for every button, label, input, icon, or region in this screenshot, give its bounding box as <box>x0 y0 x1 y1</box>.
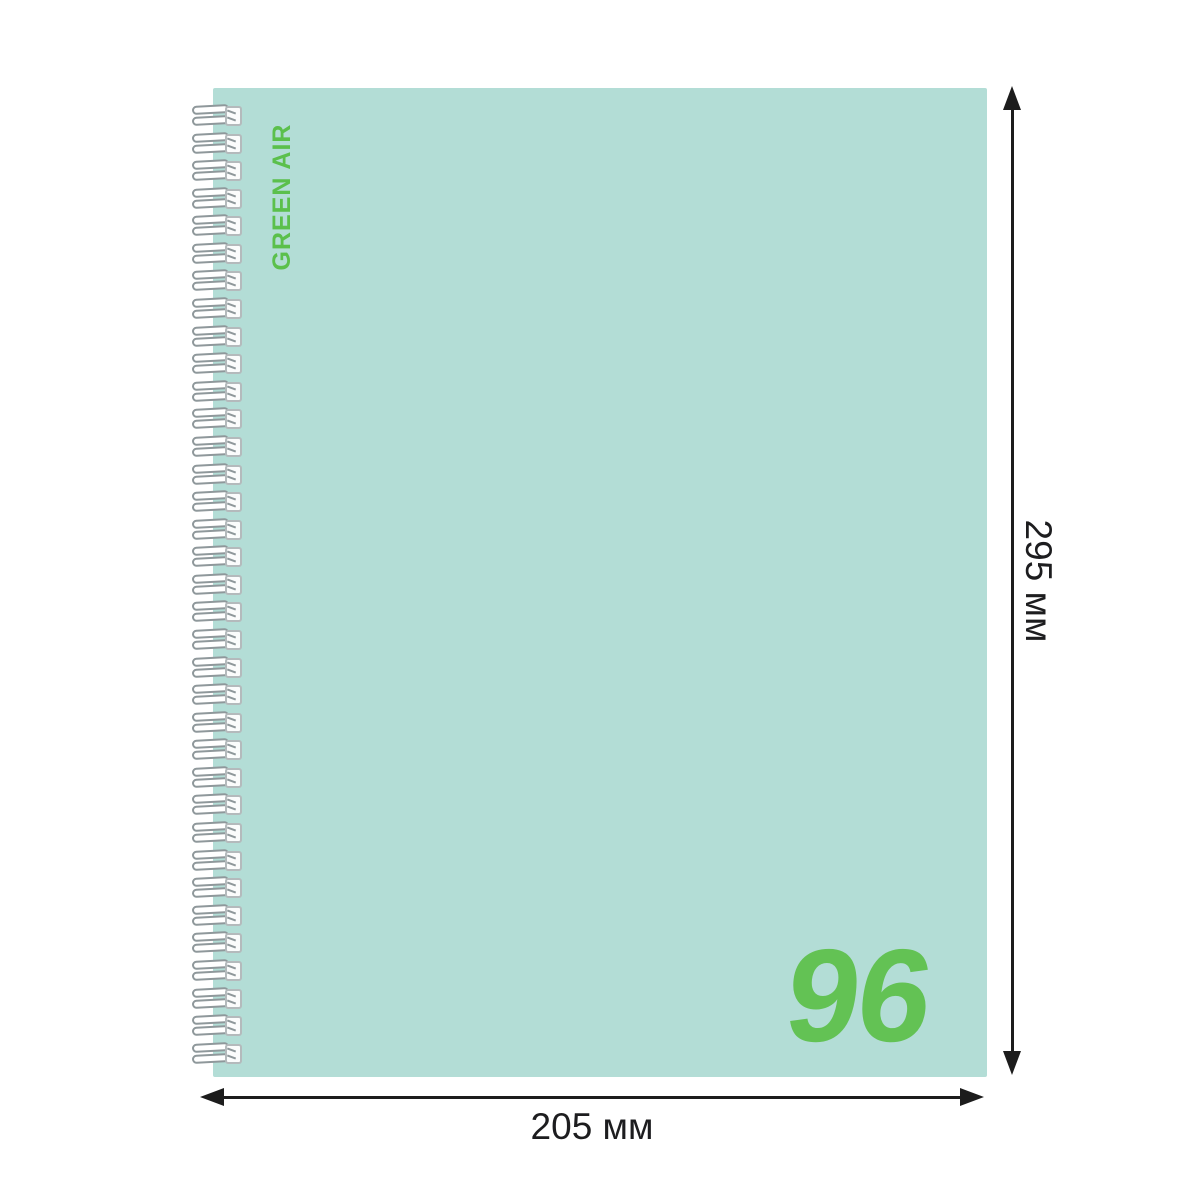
height-dimension-label: 295 мм <box>1016 431 1060 731</box>
wire-coil <box>192 574 242 596</box>
wire-coil <box>192 353 242 375</box>
wire-ring <box>192 766 229 777</box>
wire-ring <box>192 860 229 871</box>
wire-ring <box>192 501 229 512</box>
wire-coil <box>192 1015 242 1037</box>
punch-hole <box>225 134 242 154</box>
wire-coil <box>192 822 242 844</box>
punch-hole <box>225 547 242 567</box>
wire-ring <box>192 115 229 126</box>
wire-coil <box>192 270 242 292</box>
wire-coil <box>192 601 242 623</box>
wire-ring <box>192 242 229 253</box>
brand-text: GREEN AIR <box>267 67 297 327</box>
wire-coil <box>192 905 242 927</box>
punch-hole <box>225 271 242 291</box>
wire-ring <box>192 694 229 705</box>
punch-hole <box>225 933 242 953</box>
wire-coil <box>192 298 242 320</box>
wire-ring <box>192 474 229 485</box>
wire-ring <box>192 1014 229 1025</box>
wire-ring <box>192 435 229 446</box>
wire-ring <box>192 639 229 650</box>
wire-coil <box>192 519 242 541</box>
spiral-binding <box>192 105 242 1065</box>
punch-hole <box>225 216 242 236</box>
wire-ring <box>192 821 229 832</box>
wire-ring <box>192 253 229 264</box>
punch-hole <box>225 437 242 457</box>
wire-coil <box>192 408 242 430</box>
wire-coil <box>192 657 242 679</box>
wire-ring <box>192 904 229 915</box>
wire-coil <box>192 326 242 348</box>
wire-ring <box>192 738 229 749</box>
arrow-down-icon <box>1003 1051 1021 1075</box>
wire-ring <box>192 683 229 694</box>
wire-ring <box>192 611 229 622</box>
height-dimension-line <box>1011 98 1014 1062</box>
wire-coil <box>192 188 242 210</box>
wire-ring <box>192 529 229 540</box>
arrow-right-icon <box>960 1088 984 1106</box>
wire-coil <box>192 105 242 127</box>
wire-ring <box>192 931 229 942</box>
wire-coil <box>192 988 242 1010</box>
wire-ring <box>192 407 229 418</box>
punch-hole <box>225 465 242 485</box>
wire-coil <box>192 684 242 706</box>
wire-ring <box>192 143 229 154</box>
wire-ring <box>192 297 229 308</box>
punch-hole <box>225 989 242 1009</box>
punch-hole <box>225 1044 242 1064</box>
wire-coil <box>192 381 242 403</box>
wire-ring <box>192 159 229 170</box>
wire-ring <box>192 584 229 595</box>
punch-hole <box>225 244 242 264</box>
wire-ring <box>192 1053 229 1064</box>
wire-coil <box>192 629 242 651</box>
wire-ring <box>192 490 229 501</box>
wire-ring <box>192 214 229 225</box>
wire-ring <box>192 352 229 363</box>
punch-hole <box>225 906 242 926</box>
punch-hole <box>225 106 242 126</box>
wire-ring <box>192 628 229 639</box>
product-image: GREEN AIR 96 295 мм 205 мм <box>0 0 1200 1200</box>
wire-coil <box>192 546 242 568</box>
punch-hole <box>225 327 242 347</box>
wire-ring <box>192 391 229 402</box>
wire-ring <box>192 722 229 733</box>
wire-coil <box>192 960 242 982</box>
wire-ring <box>192 170 229 181</box>
wire-coil <box>192 850 242 872</box>
punch-hole <box>225 685 242 705</box>
wire-ring <box>192 600 229 611</box>
wire-ring <box>192 656 229 667</box>
wire-ring <box>192 987 229 998</box>
punch-hole <box>225 161 242 181</box>
wire-ring <box>192 308 229 319</box>
wire-ring <box>192 187 229 198</box>
wire-ring <box>192 849 229 860</box>
wire-ring <box>192 711 229 722</box>
wire-ring <box>192 667 229 678</box>
wire-ring <box>192 1025 229 1036</box>
punch-hole <box>225 630 242 650</box>
punch-hole <box>225 658 242 678</box>
wire-coil <box>192 436 242 458</box>
wire-ring <box>192 281 229 292</box>
wire-ring <box>192 132 229 143</box>
punch-hole <box>225 520 242 540</box>
punch-hole <box>225 878 242 898</box>
wire-ring <box>192 832 229 843</box>
punch-hole <box>225 740 242 760</box>
wire-ring <box>192 573 229 584</box>
wire-coil <box>192 794 242 816</box>
wire-ring <box>192 998 229 1009</box>
wire-coil <box>192 767 242 789</box>
width-dimension-label: 205 мм <box>442 1105 742 1149</box>
punch-hole <box>225 823 242 843</box>
wire-ring <box>192 942 229 953</box>
wire-ring <box>192 270 229 281</box>
wire-ring <box>192 793 229 804</box>
wire-coil <box>192 243 242 265</box>
punch-hole <box>225 1016 242 1036</box>
wire-ring <box>192 363 229 374</box>
wire-ring <box>192 380 229 391</box>
wire-ring <box>192 325 229 336</box>
width-dimension-line <box>214 1096 970 1099</box>
wire-ring <box>192 970 229 981</box>
wire-coil <box>192 133 242 155</box>
punch-hole <box>225 492 242 512</box>
arrow-left-icon <box>200 1088 224 1106</box>
wire-ring <box>192 876 229 887</box>
wire-coil <box>192 877 242 899</box>
wire-ring <box>192 804 229 815</box>
punch-hole <box>225 795 242 815</box>
punch-hole <box>225 575 242 595</box>
wire-ring <box>192 887 229 898</box>
punch-hole <box>225 382 242 402</box>
notebook-cover: GREEN AIR 96 <box>213 88 987 1077</box>
wire-ring <box>192 749 229 760</box>
wire-coil <box>192 215 242 237</box>
wire-ring <box>192 518 229 529</box>
wire-coil <box>192 932 242 954</box>
wire-ring <box>192 418 229 429</box>
punch-hole <box>225 409 242 429</box>
wire-ring <box>192 198 229 209</box>
punch-hole <box>225 768 242 788</box>
wire-ring <box>192 336 229 347</box>
wire-ring <box>192 446 229 457</box>
punch-hole <box>225 189 242 209</box>
wire-ring <box>192 777 229 788</box>
wire-ring <box>192 104 229 115</box>
wire-ring <box>192 225 229 236</box>
wire-coil <box>192 712 242 734</box>
wire-ring <box>192 915 229 926</box>
wire-coil <box>192 739 242 761</box>
wire-ring <box>192 545 229 556</box>
sheet-count: 96 <box>779 930 938 1062</box>
wire-ring <box>192 463 229 474</box>
punch-hole <box>225 961 242 981</box>
punch-hole <box>225 713 242 733</box>
wire-ring <box>192 959 229 970</box>
punch-hole <box>225 602 242 622</box>
wire-coil <box>192 1043 242 1065</box>
punch-hole <box>225 354 242 374</box>
wire-coil <box>192 160 242 182</box>
punch-hole <box>225 851 242 871</box>
wire-coil <box>192 491 242 513</box>
arrow-up-icon <box>1003 86 1021 110</box>
wire-ring <box>192 556 229 567</box>
wire-coil <box>192 464 242 486</box>
wire-ring <box>192 1042 229 1053</box>
punch-hole <box>225 299 242 319</box>
